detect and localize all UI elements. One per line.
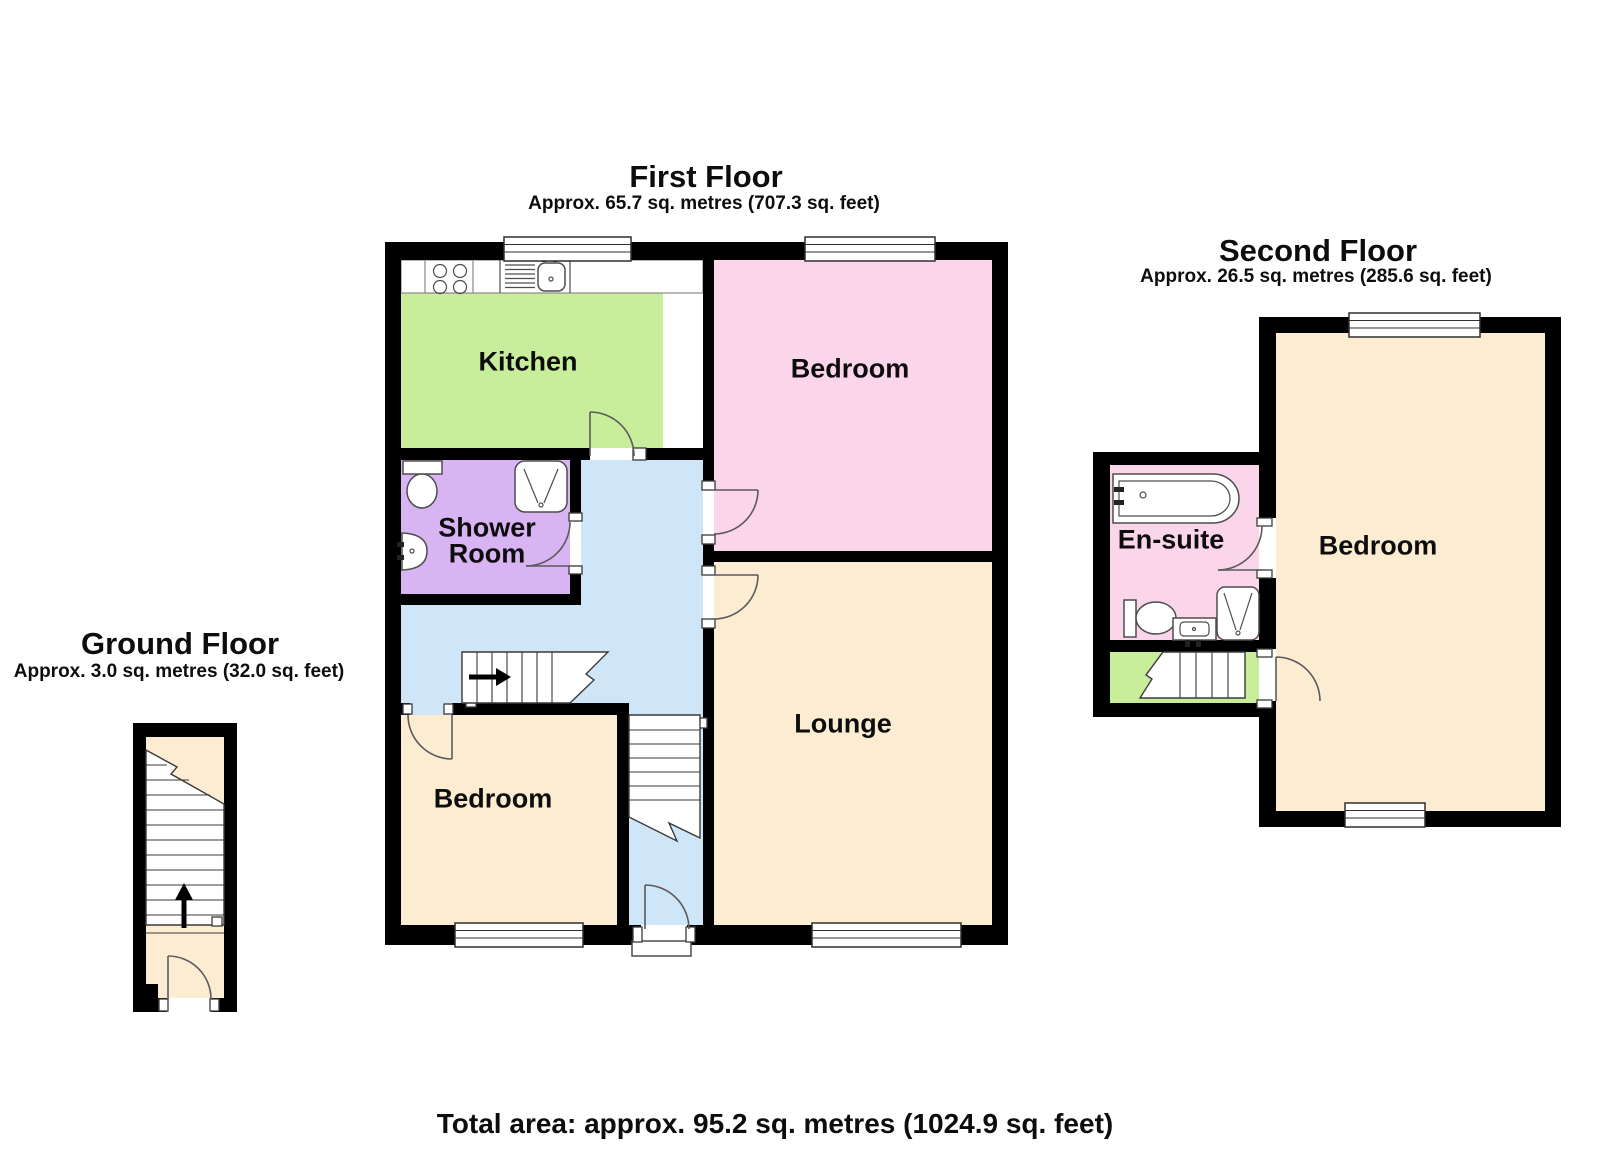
bedroom-second-floor [1276, 333, 1545, 811]
window [1349, 313, 1480, 337]
total-area-text: Total area: approx. 95.2 sq. metres (102… [437, 1108, 1113, 1140]
shower-tray-icon [1217, 587, 1259, 640]
window [455, 923, 583, 947]
ground-floor-plan [133, 723, 237, 1012]
hob-icon [425, 260, 473, 294]
window [805, 237, 935, 261]
bath-icon [1113, 474, 1239, 523]
bedroom-second-label: Bedroom [1319, 531, 1438, 562]
toilet-icon [1124, 600, 1176, 637]
front-door-step [632, 941, 691, 956]
floorplan-drawing [0, 0, 1599, 1163]
floorplan-canvas: First Floor Approx. 65.7 sq. metres (707… [0, 0, 1599, 1163]
second-floor-plan [1093, 313, 1561, 827]
second-floor-title: Second Floor [1219, 233, 1417, 269]
first-floor-title: First Floor [629, 159, 782, 195]
window [504, 237, 631, 261]
stairs-down-icon [629, 715, 700, 841]
shower-tray-icon [515, 461, 567, 512]
kitchen-label: Kitchen [478, 347, 577, 378]
second-floor-subtitle: Approx. 26.5 sq. metres (285.6 sq. feet) [1140, 266, 1492, 288]
bedroom-rear-floor [401, 715, 617, 925]
window [812, 923, 961, 947]
first-floor-plan [385, 237, 1008, 956]
lounge-floor [714, 562, 992, 925]
ground-floor-title: Ground Floor [81, 626, 279, 662]
ensuite-label: En-suite [1118, 525, 1225, 556]
bedroom-rear-label: Bedroom [434, 784, 553, 815]
bedroom-front-label: Bedroom [791, 354, 910, 385]
shower-room-label-line2: Room [449, 539, 526, 570]
bedroom-front-floor [714, 260, 992, 551]
window [1345, 803, 1425, 827]
ground-floor-subtitle: Approx. 3.0 sq. metres (32.0 sq. feet) [14, 661, 345, 683]
first-floor-subtitle: Approx. 65.7 sq. metres (707.3 sq. feet) [528, 193, 880, 215]
lounge-label: Lounge [794, 709, 891, 740]
ground-door-opening [167, 998, 211, 1012]
